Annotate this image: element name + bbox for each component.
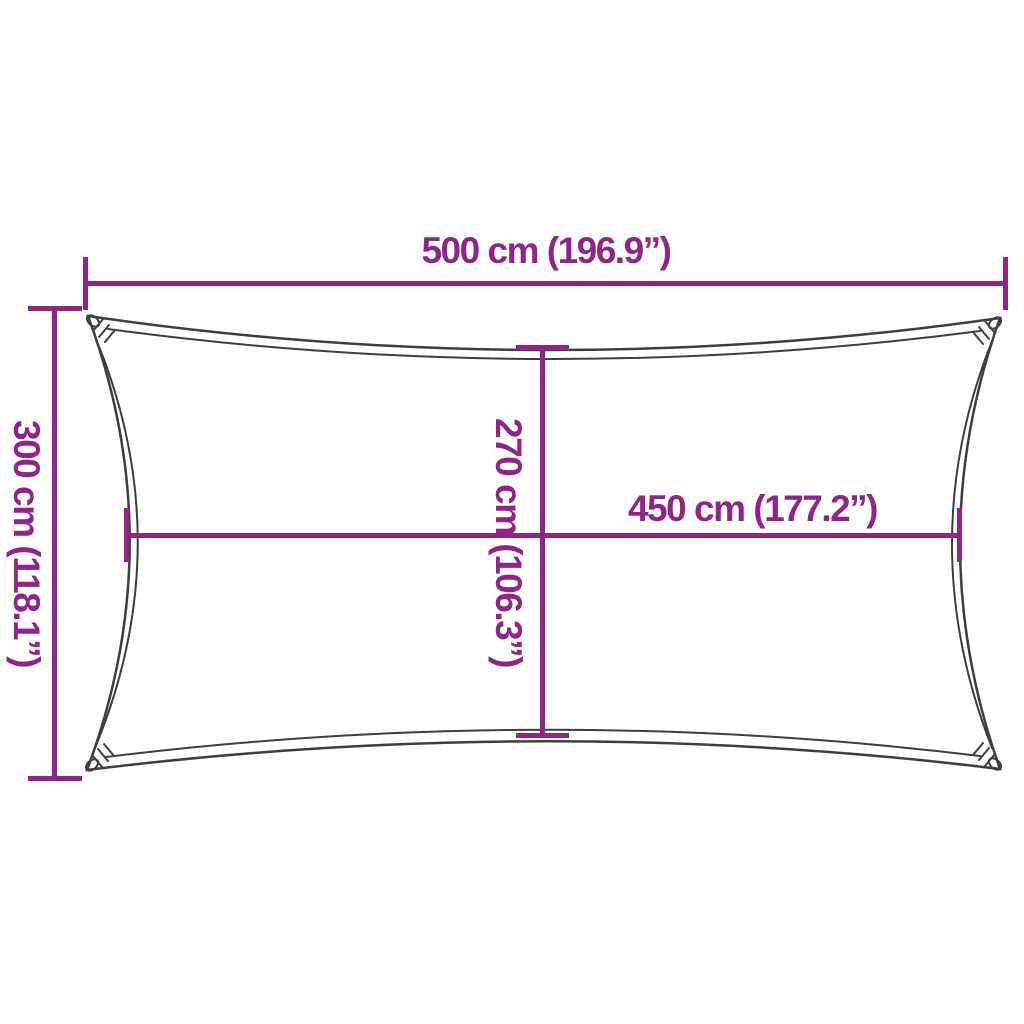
inner-width-dimension-label: 450 cm (177.2”) bbox=[628, 490, 877, 527]
sail-inner-hem-left bbox=[95, 339, 138, 748]
outer-height-dimension-label: 300 cm (118.1”) bbox=[8, 420, 45, 667]
inner-height-dimension-label: 270 cm (106.3”) bbox=[490, 418, 527, 667]
inner-width-dimension-tick-left bbox=[124, 508, 129, 562]
inner-width-dimension-line bbox=[126, 533, 962, 538]
outer-height-dimension-line bbox=[52, 308, 57, 779]
outer-width-dimension-label: 500 cm (196.9”) bbox=[421, 232, 670, 269]
inner-height-dimension-line bbox=[540, 347, 545, 738]
product-dimension-diagram: 500 cm (196.9”) 300 cm (118.1”) 270 cm (… bbox=[0, 0, 1024, 1024]
outer-width-dimension-line bbox=[85, 281, 1007, 286]
